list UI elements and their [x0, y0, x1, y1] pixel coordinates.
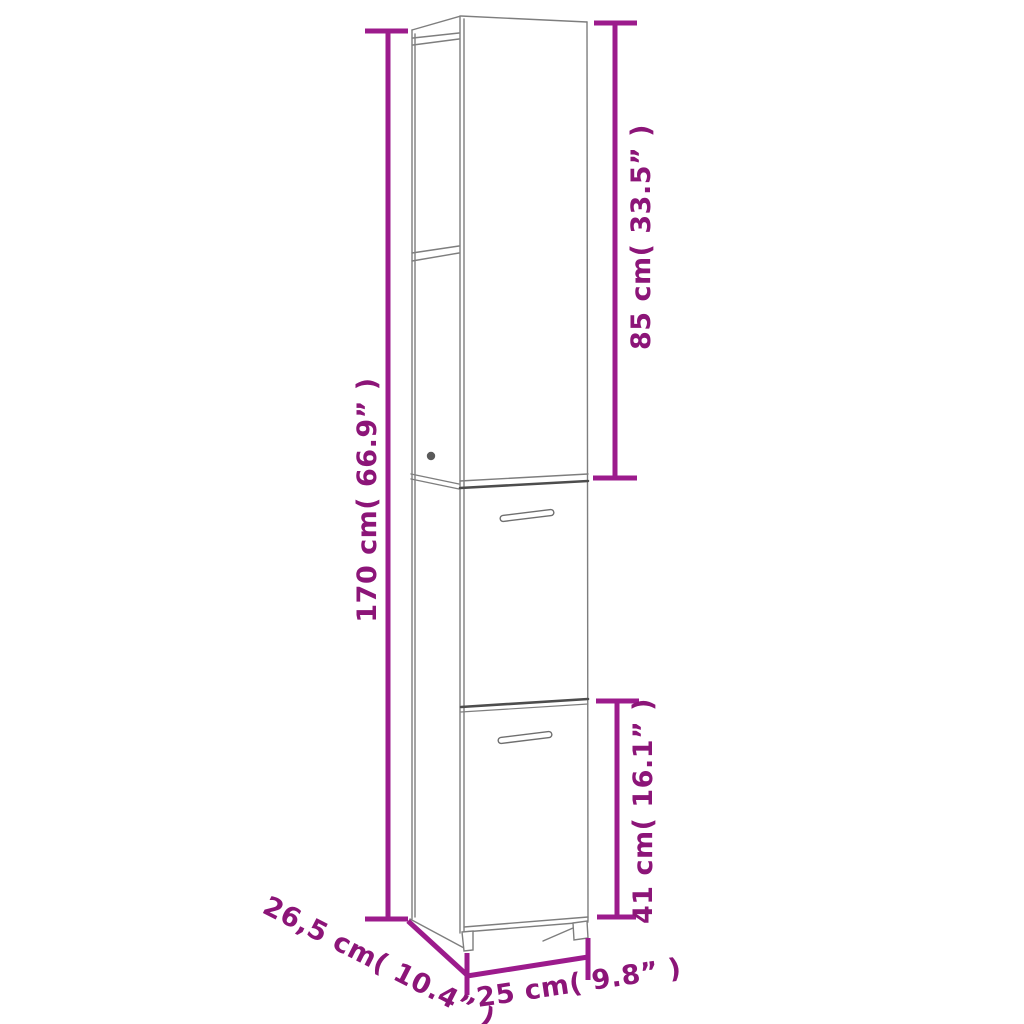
cabinet-front-left-leg [462, 931, 473, 951]
dimension-diagram-canvas: 170 cm( 66.9” ) 85 cm( 33.5” ) 41 cm( 16… [0, 0, 1024, 1024]
product-dimension-image: 170 cm( 66.9” ) 85 cm( 33.5” ) 41 cm( 16… [0, 0, 1024, 1024]
dimension-labels: 170 cm( 66.9” ) 85 cm( 33.5” ) 41 cm( 16… [258, 124, 684, 1024]
bottom-door-handle [498, 731, 552, 744]
width-label: 25 cm( 9.8” ) [474, 953, 683, 1014]
cabinet-section-side-lines [411, 474, 459, 489]
cam-lock-knob [427, 452, 435, 460]
cabinet-shelf-lines [412, 246, 459, 261]
cabinet-right-edge [587, 22, 588, 921]
upper-height-label: 85 cm( 33.5” ) [626, 124, 657, 350]
middle-door-handle [500, 509, 554, 522]
dimension-lines [365, 23, 639, 995]
upper-door-top-gap [460, 481, 588, 488]
cabinet-back-rail [543, 928, 573, 941]
lower-height-label: 41 cm( 16.1” ) [628, 698, 659, 924]
cabinet-front-left-edge [460, 16, 464, 933]
cabinet-top-inner-lines [413, 33, 459, 45]
cabinet-section-front-line [460, 474, 588, 481]
cabinet-top-edge [412, 16, 587, 30]
cabinet-front-right-leg [573, 921, 588, 940]
total-height-label: 170 cm( 66.9” ) [352, 377, 383, 622]
